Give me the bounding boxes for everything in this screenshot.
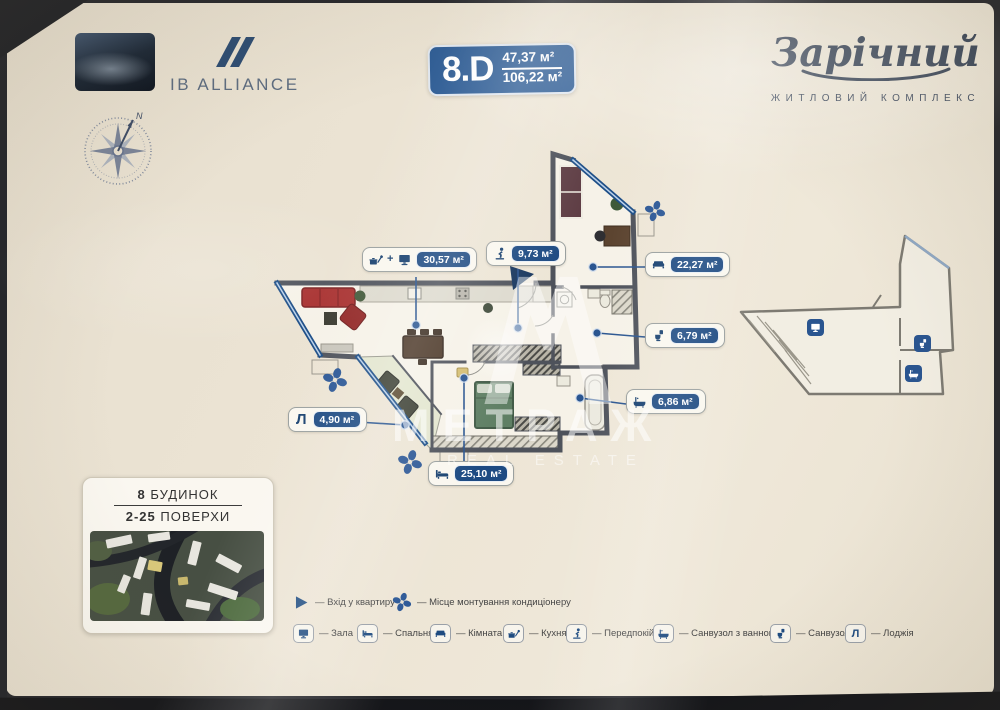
- complex-subtitle: ЖИТЛОВИЙ КОМПЛЕКС: [763, 93, 988, 104]
- label-hall: 9,73 м²: [486, 241, 566, 266]
- dash: —: [315, 597, 325, 608]
- developer-logo-slash-icon: [222, 37, 256, 67]
- legend-label: Передпокій: [604, 628, 654, 639]
- unit-badge: 8.D 47,37 м² 106,22 м²: [428, 43, 577, 96]
- complex-logo: Зарічний ЖИТЛОВИЙ КОМПЛЕКС: [763, 34, 988, 104]
- entry-arrow-icon: [293, 594, 310, 611]
- wc-area-value: 6,79 м²: [670, 327, 719, 344]
- bathtub-icon: [632, 394, 647, 409]
- sofa-icon: [651, 257, 666, 272]
- developer-name: IB ALLIANCE: [170, 75, 300, 95]
- kitchen-icon: [503, 624, 524, 643]
- floors-range: 2-25: [126, 509, 156, 524]
- sofa-icon: [430, 624, 451, 643]
- dash: —: [319, 628, 329, 639]
- legend-item-sanvuzol-vanna: — Санвузол з ванною: [653, 624, 776, 643]
- legend-item-lodzhiya: Л — Лоджія: [845, 624, 914, 643]
- bedroom-area-value: 25,10 м²: [454, 465, 508, 482]
- developer-logo-image: [75, 33, 155, 91]
- legend-label: Зала: [331, 628, 353, 639]
- dash: —: [679, 628, 689, 639]
- label-bath: 6,86 м²: [626, 389, 706, 414]
- unit-total-area: 106,22 м²: [502, 69, 562, 87]
- label-wc: 6,79 м²: [645, 323, 725, 348]
- legend-item-kimnata: — Кімната: [430, 624, 502, 643]
- person-icon: [566, 624, 587, 643]
- toilet-icon: [770, 624, 791, 643]
- unit-code: 8.D: [442, 51, 494, 87]
- legend-item-spalnya: — Спальня: [357, 624, 433, 643]
- unit-living-area: 47,37 м²: [502, 49, 562, 70]
- dash: —: [592, 628, 602, 639]
- compass-north-label: N: [136, 111, 143, 121]
- tv-icon: [293, 624, 314, 643]
- toilet-icon: [651, 328, 666, 343]
- legend-label: Лоджія: [883, 628, 913, 639]
- room-area-value: 22,27 м²: [670, 256, 724, 273]
- dash: —: [456, 628, 466, 639]
- hall-wardrobe: [473, 345, 561, 362]
- loggia-letter: Л: [294, 411, 309, 428]
- dash: —: [796, 628, 806, 639]
- legend-ac: — Місце монтування кондиціонеру: [392, 592, 571, 612]
- label-bedroom: 25,10 м²: [428, 461, 514, 486]
- plus-sign: +: [387, 254, 393, 265]
- building-number: 8: [138, 487, 146, 502]
- dash: —: [529, 628, 539, 639]
- dash: —: [871, 628, 881, 639]
- living-area-value: 30,57 м²: [416, 251, 470, 268]
- legend-item-sanvuzol: — Санвузол: [770, 624, 850, 643]
- bed-icon: [357, 624, 378, 643]
- schematic-plan: [735, 228, 960, 408]
- legend-entry-label: Вхід у квартиру: [327, 597, 395, 608]
- legend-ac-label: Місце монтування кондиціонеру: [429, 597, 571, 608]
- photographed-floor-plan-sheet: IB ALLIANCE 8.D 47,37 м² 106,22 м² Заріч…: [0, 0, 1000, 710]
- legend-item-kuhnya: — Кухня: [503, 624, 567, 643]
- tv-icon: [397, 252, 412, 267]
- letter-l-icon: Л: [845, 624, 866, 643]
- legend-item-zala: — Зала: [293, 624, 353, 643]
- person-icon: [492, 246, 507, 261]
- bathtub-fixture: [585, 375, 605, 430]
- legend-item-peredpokiy: — Передпокій: [566, 624, 654, 643]
- ac-fan-icon: [642, 198, 668, 224]
- bed-icon: [434, 466, 450, 482]
- compass-rose: N: [78, 108, 158, 188]
- label-living-kitchen: + 30,57 м²: [362, 247, 477, 272]
- building-word: БУДИНОК: [150, 487, 218, 502]
- bath-area-value: 6,86 м²: [651, 393, 700, 410]
- loggia-area-value: 4,90 м²: [313, 411, 362, 428]
- photo-edge-shadow: [0, 40, 7, 700]
- legend-label: Кімната: [468, 628, 502, 639]
- building-card: 8 БУДИНОК 2-25 ПОВЕРХИ: [82, 477, 274, 634]
- legend-label: Спальня: [395, 628, 433, 639]
- desk: [604, 226, 630, 246]
- sofa-red: [302, 288, 355, 307]
- label-room: 22,27 м²: [645, 252, 730, 277]
- legend-label: Кухня: [541, 628, 566, 639]
- floors-word: ПОВЕРХИ: [160, 509, 230, 524]
- satellite-map: [90, 531, 264, 621]
- legend-label: Санвузол з ванною: [691, 628, 776, 639]
- ac-fan-icon: [394, 446, 425, 477]
- hall-area-value: 9,73 м²: [511, 245, 560, 262]
- bathtub-icon: [653, 624, 674, 643]
- dash: —: [417, 597, 427, 608]
- kitchen-icon: [368, 252, 383, 267]
- dash: —: [383, 628, 393, 639]
- legend-label: Санвузол: [808, 628, 850, 639]
- complex-name: Зарічний: [763, 34, 988, 73]
- legend-entry: — Вхід у квартиру: [293, 594, 395, 611]
- label-loggia: Л 4,90 м²: [288, 407, 367, 432]
- fan-icon: [392, 592, 412, 612]
- dining-table: [403, 336, 443, 358]
- ac-fan-icon: [319, 364, 350, 395]
